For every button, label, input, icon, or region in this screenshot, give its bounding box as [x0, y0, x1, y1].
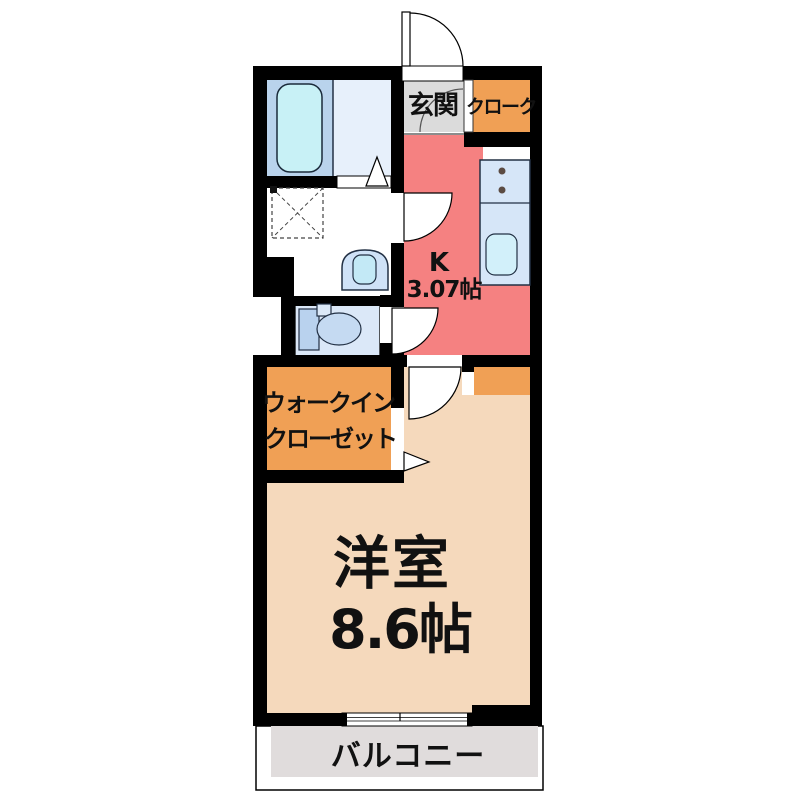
washbasin-bowl — [353, 255, 376, 284]
balcony-label: バルコニー — [331, 739, 485, 774]
wall-kitchen-bottom — [253, 355, 530, 367]
wall-toilet-right-upper — [380, 295, 404, 307]
room-door-opening — [407, 355, 462, 367]
western-room-size-label: 8.6帖 — [329, 598, 472, 661]
pan-faucet — [270, 186, 277, 193]
wall-closet-left-chunk — [462, 355, 474, 372]
window-cap-right — [467, 713, 472, 726]
closet-side-gap — [462, 372, 474, 395]
wall-bottom-right-step — [472, 705, 542, 726]
window-frame — [342, 713, 472, 726]
floor-plan-canvas: 玄関 クローク K 3.07帖 ウォークイン クローゼット 洋室 8.6帖 バル… — [0, 0, 800, 800]
wic-label-line1: ウォークイン — [262, 389, 395, 417]
floor-plan: 玄関 クローク K 3.07帖 ウォークイン クローゼット 洋室 8.6帖 バル… — [0, 0, 800, 800]
washbasin — [342, 250, 388, 290]
entrance-label: 玄関 — [408, 90, 458, 121]
kitchen-size-label: 3.07帖 — [407, 277, 483, 303]
kitchen-sink — [486, 234, 517, 275]
cloak-label: クローク — [466, 96, 537, 118]
toilet-tank — [299, 309, 319, 350]
walk-in-closet-floor — [267, 367, 391, 470]
kitchen-niche — [483, 147, 530, 160]
wall-washroom-corner — [264, 257, 294, 297]
room-closet-floor — [474, 367, 530, 395]
western-room-label: 洋室 — [333, 531, 451, 597]
kitchen-type-label: K — [429, 248, 450, 278]
toilet-bowl — [317, 313, 361, 345]
kitchen-counter — [480, 160, 530, 285]
wall-wic-bottom — [253, 470, 404, 483]
bathtub — [277, 84, 322, 172]
window-cap-left — [342, 713, 347, 726]
stove-burner-2 — [499, 187, 506, 194]
balcony-window — [342, 713, 472, 726]
washroom-door-opening — [391, 193, 404, 243]
entrance-door-opening — [402, 66, 463, 81]
bathroom-dry-zone — [333, 80, 391, 176]
wall-under-cloak — [464, 132, 530, 147]
wic-label-line2: クローゼット — [264, 425, 396, 453]
wall-right — [530, 66, 542, 726]
wall-toilet-left — [281, 297, 295, 362]
stove-burner-1 — [499, 168, 506, 175]
entrance-door-leaf — [402, 12, 410, 66]
wall-bath-bottom — [267, 176, 337, 188]
